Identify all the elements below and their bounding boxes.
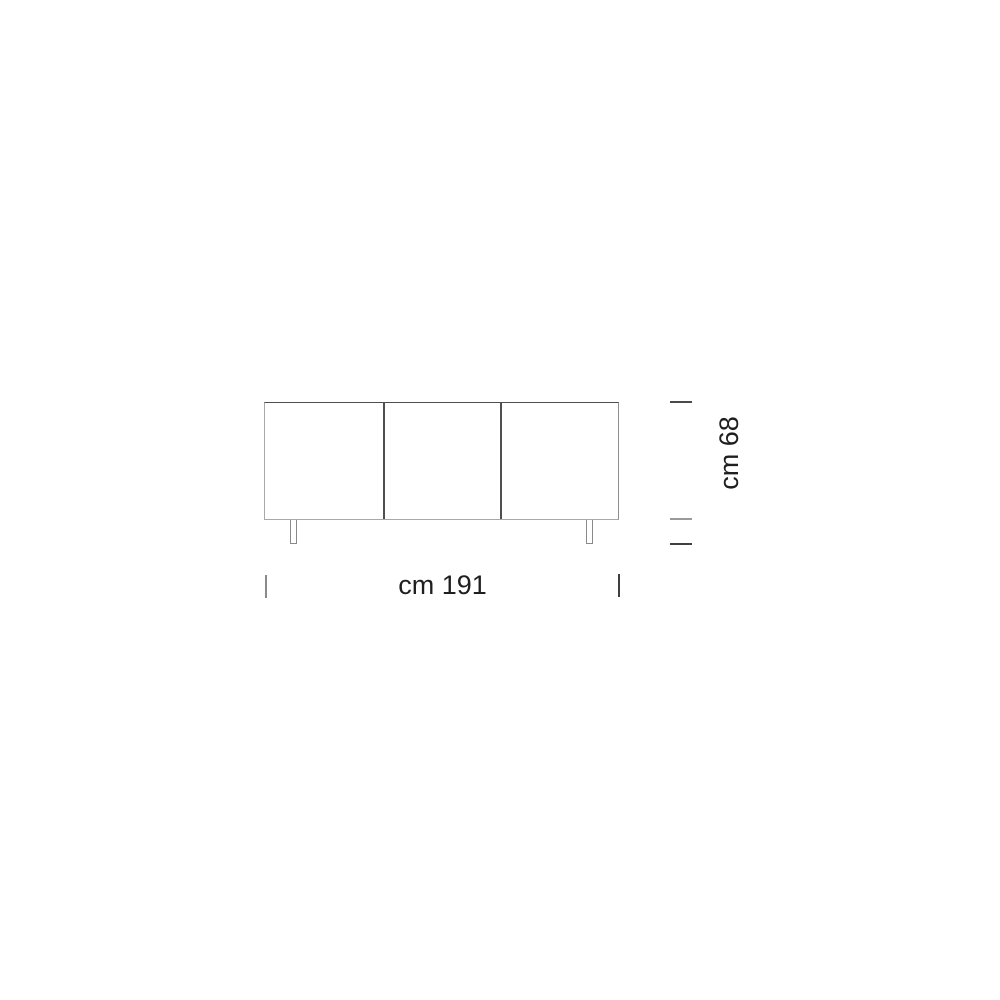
- sideboard-leg-right: [586, 520, 593, 544]
- diagram-canvas: cm 68 cm 191: [0, 0, 1000, 1000]
- height-dimension-tick-top: [670, 401, 692, 403]
- width-dimension-label: cm 191: [265, 572, 620, 598]
- sideboard-leg-left: [290, 520, 297, 544]
- sideboard-outline: [264, 402, 619, 520]
- door-divider-left: [383, 403, 385, 519]
- height-dimension-tick-bottom: [670, 543, 692, 545]
- door-divider-right: [500, 403, 502, 519]
- height-dimension-label: cm 68: [716, 413, 742, 493]
- height-dimension-tick-body-bottom: [670, 518, 692, 520]
